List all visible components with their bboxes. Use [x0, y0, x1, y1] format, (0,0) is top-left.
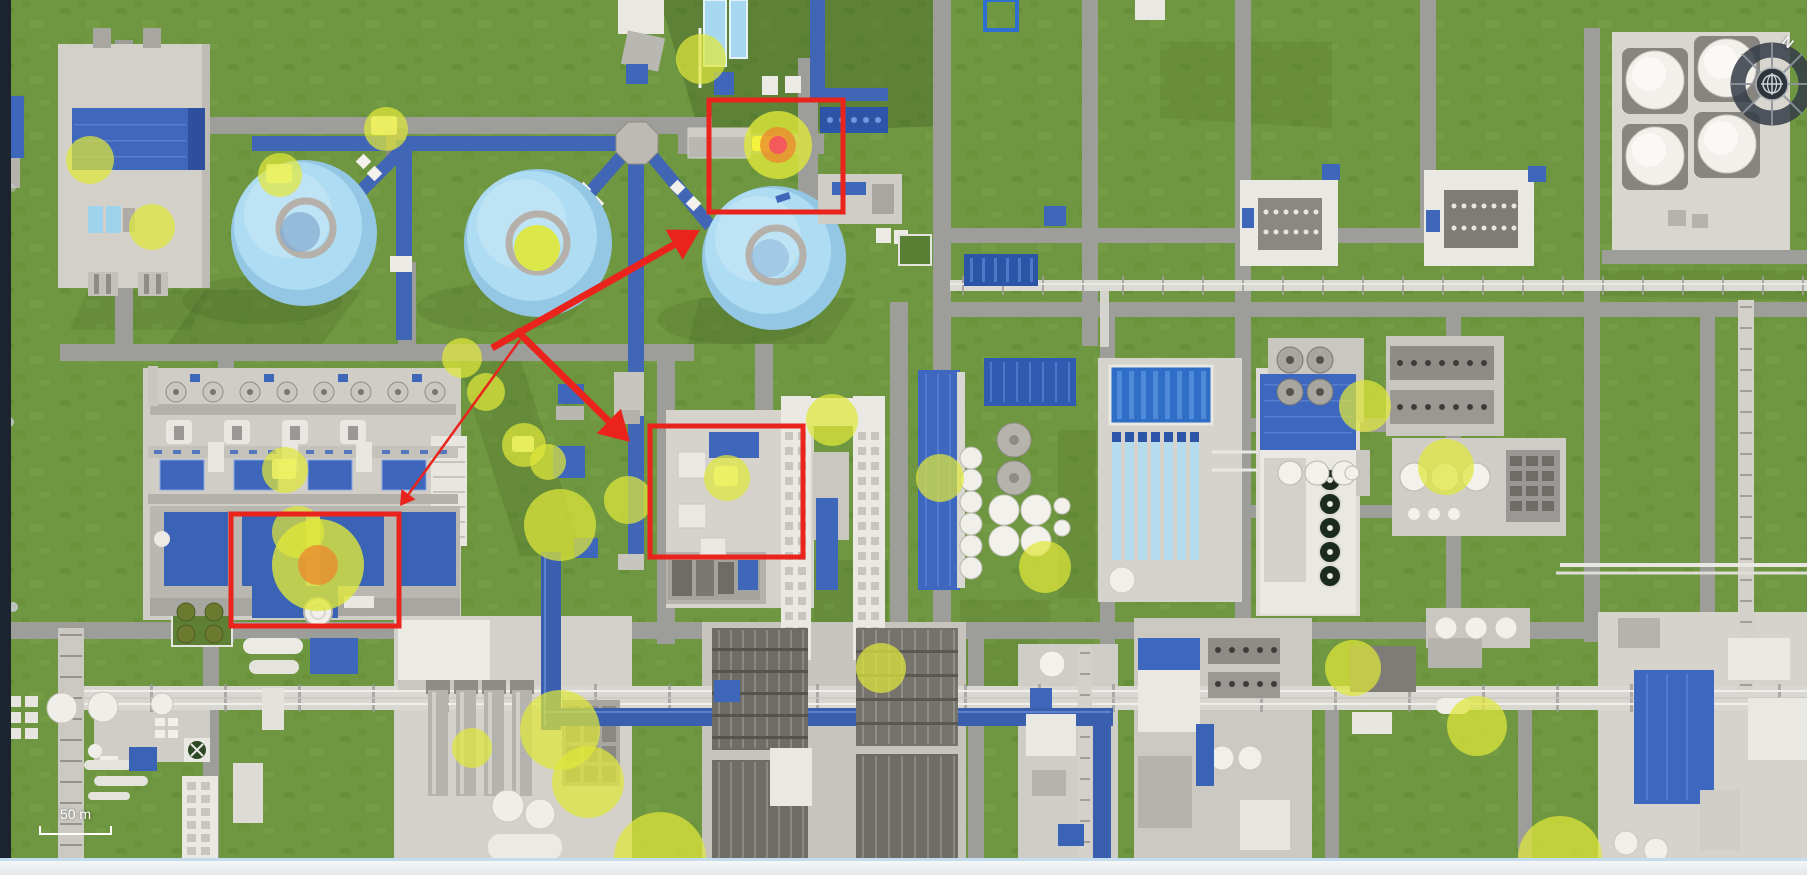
pipe-vertical — [396, 140, 412, 340]
sensor-spot — [1418, 439, 1474, 495]
sensor-spot — [442, 338, 482, 378]
sphere-tank — [151, 693, 173, 715]
machinery-blue — [738, 560, 758, 590]
bldg-white — [1026, 714, 1076, 756]
sensor-spot — [452, 728, 492, 768]
sensor-marker — [714, 466, 738, 486]
machinery-dark — [672, 560, 692, 596]
roof-center — [1444, 190, 1518, 248]
sphere-tank — [989, 495, 1019, 525]
roof-blue — [709, 432, 759, 458]
bldg-inner-blue — [816, 498, 838, 590]
sensor-spot — [856, 643, 906, 693]
cube-blue — [1044, 206, 1066, 226]
dock-blue — [1242, 208, 1254, 228]
sensor-spot — [524, 489, 596, 561]
solar-panel — [964, 254, 1038, 286]
panel-blue — [160, 460, 204, 490]
tank-white — [1614, 831, 1638, 855]
tank-smallblue — [106, 206, 121, 233]
tank-gray-center — [1009, 435, 1019, 445]
roof-blue — [164, 512, 228, 586]
pedestal — [356, 442, 372, 472]
bldg-white — [262, 688, 284, 730]
mount-slot — [174, 426, 184, 440]
clarifier-heads — [1112, 432, 1199, 442]
tank-gray-center — [1009, 473, 1019, 483]
bar-white — [94, 776, 148, 786]
panel-blue — [308, 460, 352, 490]
mount-slot — [232, 426, 242, 440]
tank-horizontal — [249, 660, 299, 674]
shed-blue — [310, 638, 358, 674]
cube-blue — [129, 747, 157, 771]
hotspot-orange — [298, 545, 338, 585]
tank-small — [88, 744, 102, 758]
plant-3d-map — [0, 0, 1807, 875]
sensor-spot — [1339, 380, 1391, 432]
tank-horizontal — [488, 834, 562, 860]
mount-slot — [348, 426, 358, 440]
machinery-dark — [696, 560, 714, 596]
pool-blue — [1110, 366, 1212, 424]
cube-blue — [1058, 824, 1084, 846]
cube-white — [678, 504, 706, 528]
unit-gray — [1428, 638, 1482, 668]
sphere-tank — [1021, 495, 1051, 525]
bank-dark — [856, 754, 958, 875]
tank-white — [492, 790, 524, 822]
sphere-tank — [47, 693, 77, 723]
tank-small-row — [1408, 508, 1460, 520]
tank-row — [1435, 617, 1517, 639]
ladder — [148, 366, 158, 406]
pipe-end-box — [618, 554, 644, 570]
cube-white — [785, 76, 801, 93]
tank-row — [1278, 461, 1356, 485]
sensor-marker — [272, 459, 296, 479]
bldg-white — [398, 620, 490, 688]
sensor-marker — [371, 116, 397, 135]
warehouse-end — [188, 108, 205, 170]
tank-small — [1345, 466, 1359, 480]
pipe-main-vert — [1093, 708, 1111, 875]
app-window: 50 m N — [0, 0, 1807, 875]
road — [933, 228, 1445, 243]
shed-gray — [556, 406, 584, 420]
road — [1325, 700, 1339, 875]
hotspot-red-core — [769, 136, 787, 154]
unit-gray — [1692, 214, 1708, 228]
tank-white — [1238, 746, 1262, 770]
road — [890, 302, 908, 642]
cube-blue — [714, 680, 740, 702]
mount-slot — [290, 426, 300, 440]
bldg-white — [1728, 638, 1790, 680]
bldg-gray — [1138, 756, 1192, 828]
sensor-spot — [604, 476, 652, 524]
bldg-white — [618, 0, 664, 34]
unit-gray — [1618, 618, 1660, 648]
clarifier-bars — [1112, 432, 1199, 560]
unit-gray — [1032, 770, 1066, 796]
tank-white — [525, 799, 555, 829]
road — [933, 302, 1807, 317]
gas-tank-2-sensor — [514, 225, 560, 271]
gas-tank-3-center — [751, 239, 789, 277]
pipe-hub-octagon — [616, 122, 658, 164]
road — [1602, 250, 1807, 264]
sensor-spot — [676, 34, 726, 84]
sphere-tank — [1054, 520, 1070, 536]
roof-center — [1258, 198, 1322, 250]
sphere-tank — [989, 526, 1019, 556]
cube-blue — [1528, 166, 1546, 182]
unit-gray — [1700, 790, 1740, 850]
sensor-spot — [530, 444, 566, 480]
beam — [150, 404, 456, 415]
sensor-spot — [129, 204, 175, 250]
desktop-edge — [0, 0, 11, 875]
window-bottom-bar — [0, 858, 1807, 875]
map-viewport[interactable] — [0, 0, 1807, 875]
strip-blue — [1196, 724, 1214, 786]
fence-green — [899, 235, 931, 265]
gas-tank-1-center — [280, 212, 320, 252]
dock-blue — [1426, 210, 1440, 232]
bldg-white — [1240, 800, 1290, 850]
sensor-marker — [512, 436, 534, 452]
road — [968, 639, 984, 875]
tank-horizontal — [243, 638, 303, 654]
bldg-slotted — [853, 396, 885, 660]
road — [1082, 0, 1098, 346]
sphere-tank — [1054, 498, 1070, 514]
sensor-spot — [66, 136, 114, 184]
sphere-tank — [88, 692, 118, 722]
bldg-white — [1138, 670, 1200, 732]
sensor-spot — [552, 746, 624, 818]
pipe-top-vert — [810, 0, 825, 96]
slab-top — [688, 128, 750, 137]
cube-white — [678, 452, 706, 478]
cube-white — [876, 228, 891, 243]
storage-tank-light — [1632, 133, 1666, 167]
storage-tank-light — [1632, 57, 1666, 91]
bldg-blue-roof — [1138, 638, 1200, 670]
unit-gray — [872, 184, 894, 214]
truck-blue — [832, 182, 866, 195]
cube-blue — [1322, 164, 1340, 180]
rack-branch — [1100, 291, 1109, 347]
tank-smallblue — [88, 206, 103, 233]
bar-white — [88, 792, 130, 800]
storage-tank-light — [1704, 121, 1738, 155]
lattice-tower — [58, 628, 84, 875]
sensor-marker — [266, 164, 292, 183]
roof-stub — [93, 28, 111, 48]
sensor-spot — [1019, 541, 1071, 593]
bldg-white — [1352, 712, 1392, 734]
roof-stub — [143, 28, 161, 48]
tank-small-white — [154, 531, 170, 547]
bldg-white — [233, 763, 263, 823]
pump-unit — [138, 272, 168, 296]
bar-white — [84, 760, 132, 770]
pump-unit — [88, 272, 118, 296]
road — [1584, 28, 1600, 642]
cube-blue — [1030, 688, 1052, 708]
sphere-tank — [1039, 651, 1065, 677]
unit-gray — [1668, 210, 1686, 226]
cube-white — [762, 76, 778, 95]
bldg-white — [1135, 0, 1165, 20]
panel-lightblue — [730, 0, 747, 58]
machinery-dark — [718, 562, 734, 594]
compass-control[interactable] — [1730, 42, 1807, 126]
panel-blue — [382, 460, 426, 490]
bldg-white — [770, 748, 812, 806]
road — [60, 344, 694, 361]
pipe-rack — [950, 280, 1807, 291]
tower-block — [614, 372, 644, 416]
sensor-spot — [916, 454, 964, 502]
pipe-box — [390, 256, 412, 272]
sensor-spot — [1325, 640, 1381, 696]
road — [755, 344, 773, 410]
roof-blue — [398, 512, 456, 586]
sensor-spot — [806, 394, 858, 446]
bldg-white — [1748, 698, 1807, 760]
sensor-spot — [1447, 696, 1507, 756]
tank-white — [1109, 567, 1135, 593]
cube-blue — [626, 64, 648, 84]
pedestal — [208, 442, 224, 472]
pipe-horizontal — [252, 136, 644, 151]
